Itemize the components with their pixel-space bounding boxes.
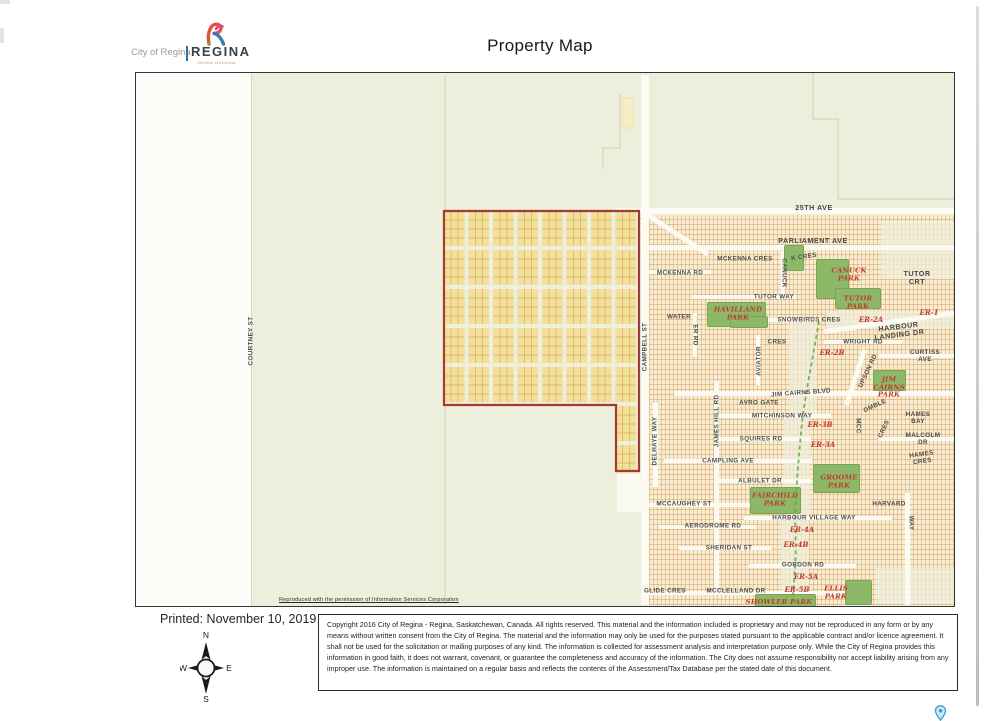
copyright-box: Copyright 2016 City of Regina - Regina, … xyxy=(318,614,958,691)
property-map-canvas: COURTNEY ST25TH AVEPARLIAMENT AVEMCKENNA… xyxy=(135,72,955,607)
svg-text:E: E xyxy=(226,663,232,673)
isc-attribution: Reproduced with the permission of Inform… xyxy=(279,597,459,603)
city-limit-line-west xyxy=(603,94,620,169)
svg-text:W: W xyxy=(180,663,187,673)
screenshot-root: { "page": { "title": "Property Map" }, "… xyxy=(0,0,990,720)
open-field xyxy=(617,474,642,512)
scan-artifact xyxy=(0,28,4,43)
logo-divider xyxy=(186,46,188,61)
printed-date-label: Printed: November 10, 2019 xyxy=(160,612,316,626)
city-of-regina-text: City of Regina xyxy=(131,47,191,58)
map-overlay xyxy=(136,73,954,606)
regina-wordmark: REGINA xyxy=(191,44,251,59)
regina-logo-icon xyxy=(202,20,228,46)
svg-text:S: S xyxy=(203,694,209,704)
page-title: Property Map xyxy=(487,36,593,56)
location-pin-icon[interactable] xyxy=(933,705,948,721)
highlighted-property-outline xyxy=(444,211,639,471)
svg-text:N: N xyxy=(203,630,209,640)
small-parcel xyxy=(622,98,633,128)
creek-corridor xyxy=(792,321,819,604)
scan-artifact xyxy=(0,0,10,4)
copyright-text: Copyright 2016 City of Regina - Regina, … xyxy=(327,620,949,673)
compass-rose-icon: N S W E xyxy=(180,628,232,704)
city-limit-line-east xyxy=(813,73,954,199)
page-edge-shadow xyxy=(976,6,979,706)
logo-tagline: Infinite Horizons xyxy=(197,60,236,65)
